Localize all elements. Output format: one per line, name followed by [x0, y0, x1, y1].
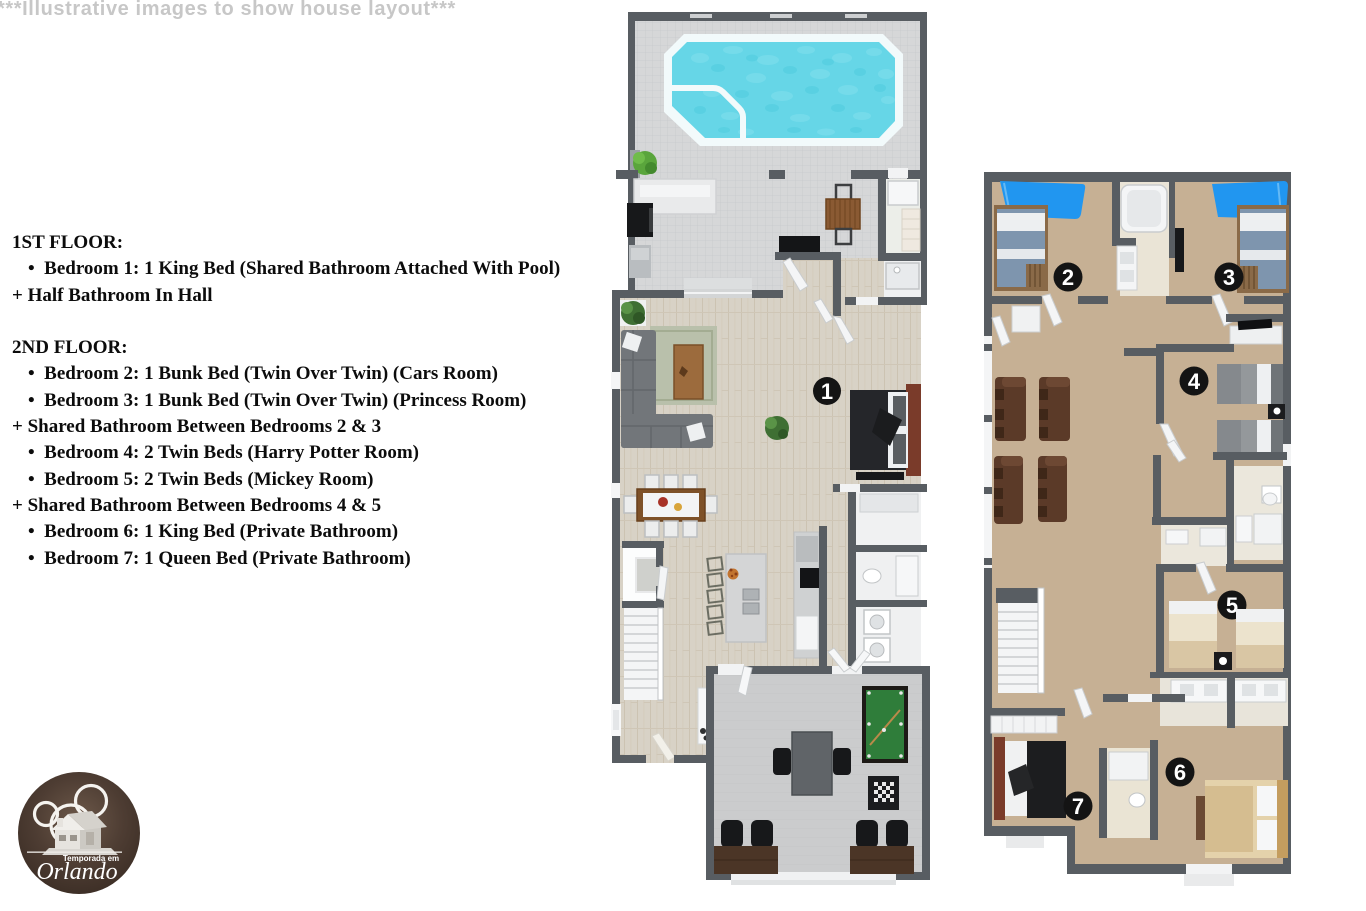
- svg-text:7: 7: [1072, 794, 1084, 819]
- svg-text:4: 4: [1188, 369, 1201, 394]
- svg-text:6: 6: [1174, 760, 1186, 785]
- svg-text:1: 1: [821, 379, 833, 404]
- svg-text:2: 2: [1062, 265, 1074, 290]
- svg-text:3: 3: [1223, 265, 1235, 290]
- svg-text:Orlando: Orlando: [36, 859, 117, 885]
